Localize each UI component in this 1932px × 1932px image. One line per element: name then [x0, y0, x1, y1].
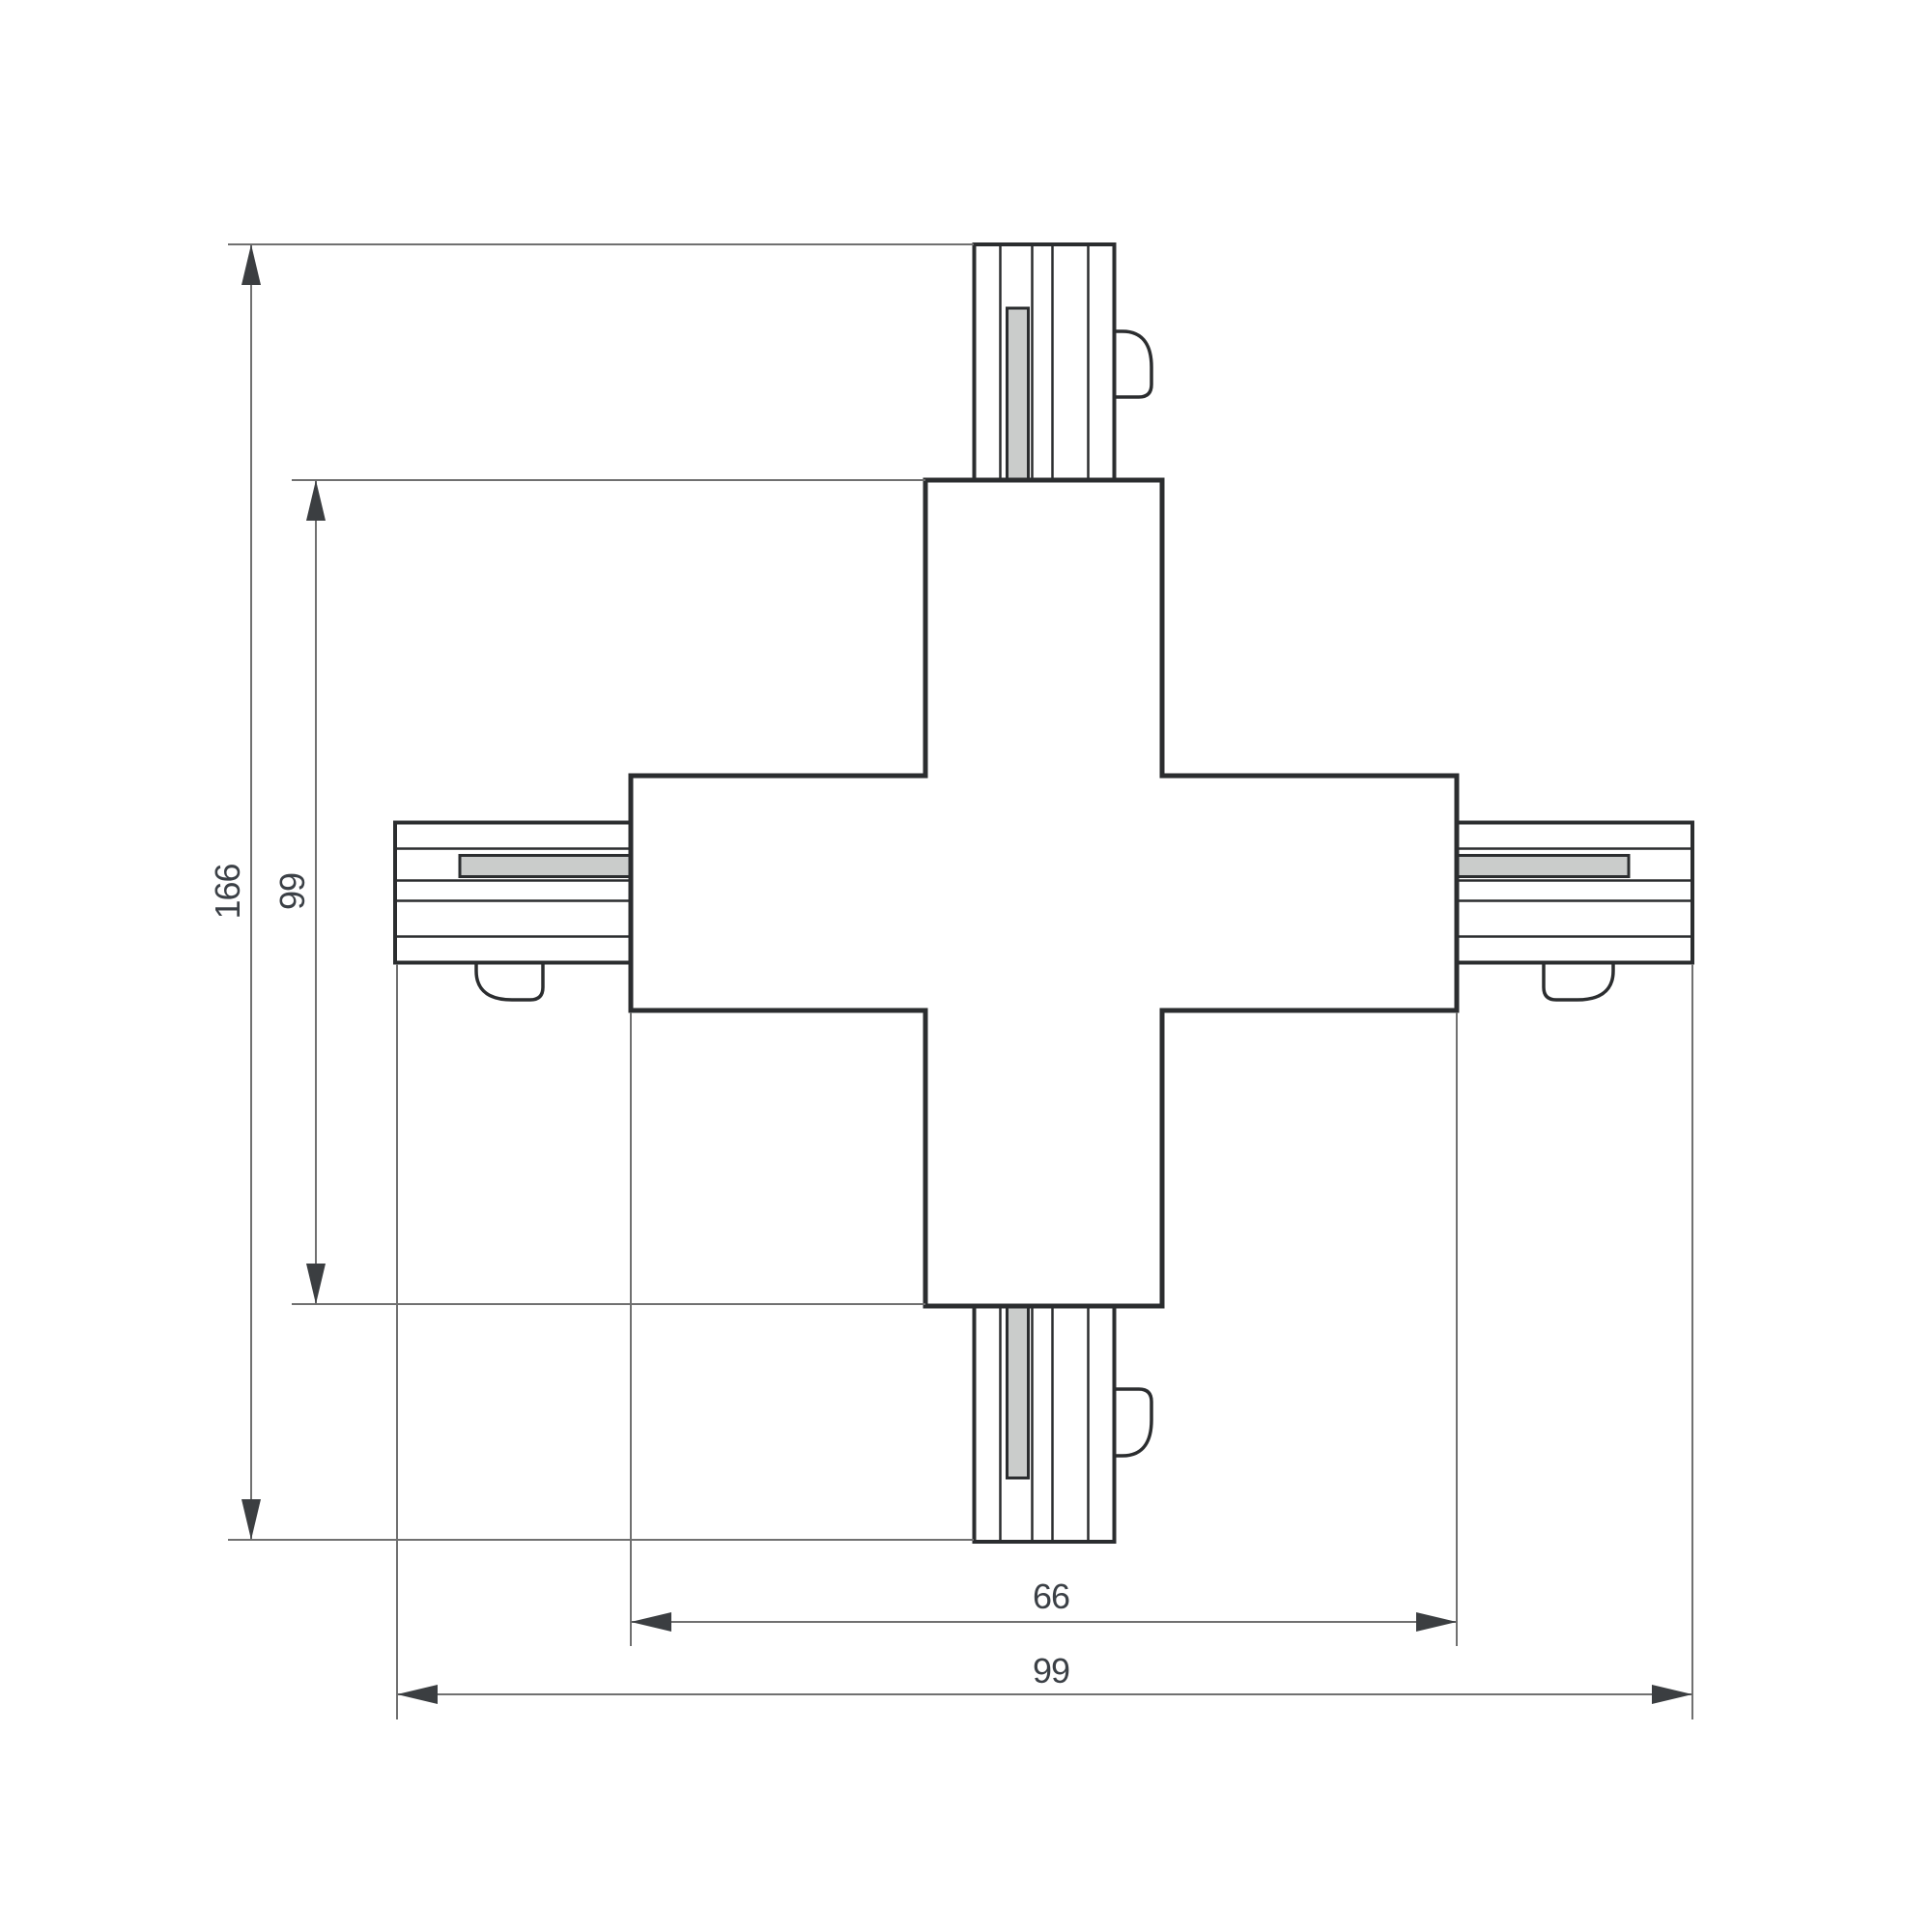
arrowhead-right — [1416, 1612, 1457, 1632]
arrowhead-right — [1652, 1685, 1692, 1704]
left-connector-outline — [395, 823, 631, 963]
dimension-label-body-width: 66 — [1033, 1577, 1069, 1616]
contact-insert-bar — [1008, 1307, 1029, 1478]
contact-insert-bar — [1458, 856, 1629, 877]
top-connector-outline — [975, 244, 1115, 480]
dimension-label-overall-length: 166 — [208, 864, 247, 919]
technical-drawing: 166 99 66 99 — [0, 0, 1932, 1932]
top-connector-arm — [975, 244, 1152, 480]
left-connector-arm — [395, 823, 631, 1001]
arrowhead-down — [306, 1264, 326, 1304]
arrowhead-down — [241, 1499, 261, 1540]
connector-cross-body — [631, 480, 1457, 1306]
locking-tab — [476, 963, 543, 1001]
arrowhead-left — [631, 1612, 671, 1632]
dimension-body-width: 66 — [631, 1577, 1457, 1632]
locking-tab — [1544, 963, 1613, 1001]
arrowhead-up — [306, 480, 326, 521]
right-connector-outline — [1457, 823, 1692, 963]
dimension-overall-length: 166 — [208, 244, 261, 1540]
locking-tab — [1115, 1389, 1152, 1456]
dimension-overall-width: 99 — [397, 1651, 1692, 1704]
dimension-label-overall-width: 99 — [1033, 1651, 1069, 1690]
contact-insert-bar — [1008, 308, 1029, 479]
bottom-connector-outline — [975, 1306, 1115, 1542]
bottom-connector-arm — [975, 1306, 1152, 1542]
dimension-body-length: 99 — [272, 480, 326, 1304]
arrowhead-up — [241, 244, 261, 285]
contact-insert-bar — [460, 856, 631, 877]
arrowhead-left — [397, 1685, 438, 1704]
dimension-label-body-length: 99 — [272, 873, 312, 910]
drawing-canvas: 166 99 66 99 — [0, 0, 1932, 1932]
right-connector-arm — [1457, 823, 1692, 1001]
locking-tab — [1115, 331, 1152, 397]
